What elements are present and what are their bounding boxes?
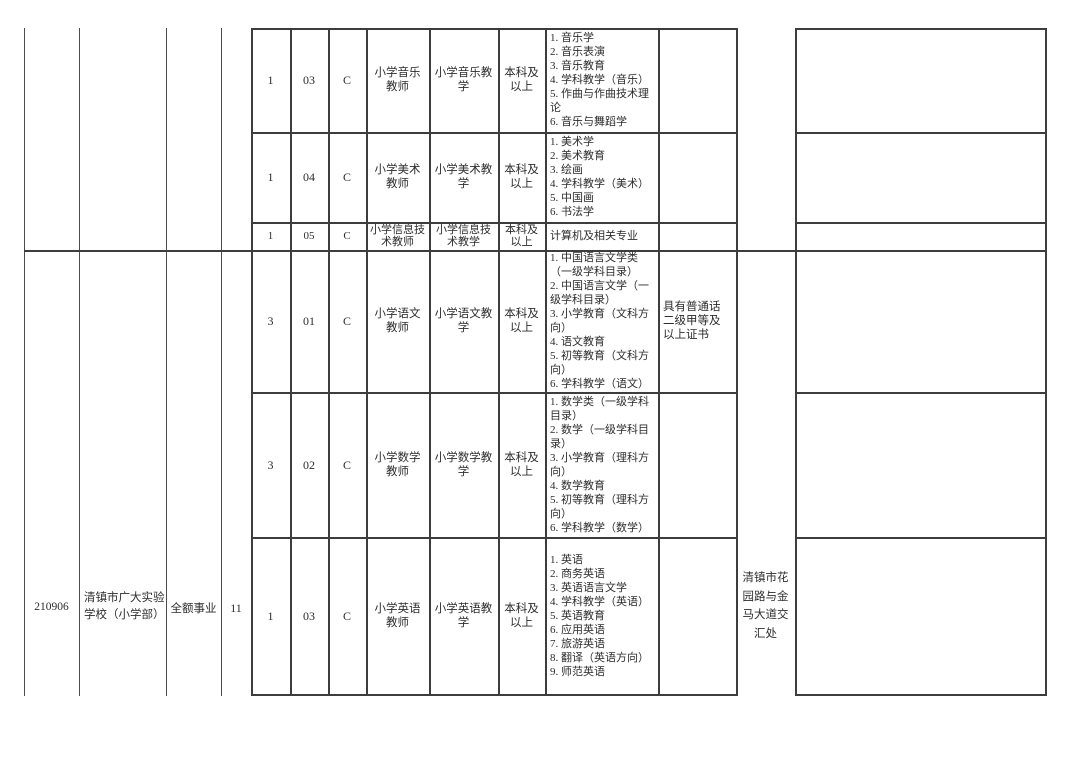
exam-category-cell: C bbox=[328, 392, 366, 537]
major-requirements-cell: 1. 英语 2. 商务英语 3. 英语语言文学 4. 学科教学（英语） 5. 英… bbox=[545, 537, 658, 694]
major-requirements-cell: 1. 音乐学 2. 音乐表演 3. 音乐教育 4. 学科教学（音乐） 5. 作曲… bbox=[545, 28, 658, 132]
exam-category-cell: C bbox=[328, 132, 366, 222]
grid-line bbox=[795, 537, 1047, 539]
teaching-subject-cell: 小学数学教学 bbox=[429, 392, 498, 537]
teaching-subject-cell: 小学语文教学 bbox=[429, 250, 498, 392]
position-name-cell: 小学音乐教师 bbox=[366, 28, 429, 132]
position-count-cell: 3 bbox=[251, 392, 290, 537]
position-count-cell: 1 bbox=[251, 28, 290, 132]
grid-line bbox=[795, 132, 1047, 134]
position-count-cell: 1 bbox=[251, 132, 290, 222]
position-count-cell: 1 bbox=[251, 537, 290, 694]
teaching-subject-cell: 小学美术教学 bbox=[429, 132, 498, 222]
position-name-cell: 小学语文教师 bbox=[366, 250, 429, 392]
position-name-cell: 小学数学教师 bbox=[366, 392, 429, 537]
position-code-cell: 02 bbox=[290, 392, 328, 537]
work-address-cell: 清镇市花园路与金马大道交汇处 bbox=[738, 566, 793, 646]
unit-code-cell: 210906 bbox=[24, 598, 79, 616]
major-requirements-cell: 计算机及相关专业 bbox=[545, 222, 658, 250]
position-count-cell: 3 bbox=[251, 250, 290, 392]
education-requirement-cell: 本科及以上 bbox=[498, 132, 545, 222]
grid-line bbox=[221, 28, 222, 696]
unit-type-cell: 全额事业 bbox=[166, 600, 221, 618]
position-code-cell: 05 bbox=[290, 222, 328, 250]
major-requirements-cell: 1. 中国语言文学类（一级学科目录） 2. 中国语言文学（一级学科目录） 3. … bbox=[545, 250, 658, 392]
teaching-subject-cell: 小学英语教学 bbox=[429, 537, 498, 694]
position-name-cell: 小学美术教师 bbox=[366, 132, 429, 222]
unit-name-cell: 清镇市广大实验学校（小学部） bbox=[80, 588, 166, 626]
position-code-cell: 01 bbox=[290, 250, 328, 392]
major-requirements-cell: 1. 数学类（一级学科目录） 2. 数学（一级学科目录） 3. 小学教育（理科方… bbox=[545, 392, 658, 537]
grid-line bbox=[24, 28, 25, 696]
position-code-cell: 03 bbox=[290, 28, 328, 132]
position-code-cell: 03 bbox=[290, 537, 328, 694]
exam-category-cell: C bbox=[328, 250, 366, 392]
position-name-cell: 小学信息技术教师 bbox=[366, 222, 429, 250]
education-requirement-cell: 本科及以上 bbox=[498, 222, 545, 250]
exam-category-cell: C bbox=[328, 537, 366, 694]
grid-line bbox=[795, 392, 1047, 394]
recruitment-table-page: 1 03 C 小学音乐教师 小学音乐教学 本科及以上 1. 音乐学 2. 音乐表… bbox=[0, 0, 1080, 764]
education-requirement-cell: 本科及以上 bbox=[498, 537, 545, 694]
teaching-subject-cell: 小学信息技术教学 bbox=[429, 222, 498, 250]
education-requirement-cell: 本科及以上 bbox=[498, 250, 545, 392]
other-requirements-cell: 具有普通话二级甲等及以上证书 bbox=[658, 250, 736, 392]
grid-line bbox=[1045, 28, 1047, 696]
education-requirement-cell: 本科及以上 bbox=[498, 28, 545, 132]
grid-line bbox=[166, 28, 167, 696]
position-name-cell: 小学英语教师 bbox=[366, 537, 429, 694]
grid-line bbox=[251, 694, 738, 696]
grid-line bbox=[795, 694, 1047, 696]
position-code-cell: 04 bbox=[290, 132, 328, 222]
education-requirement-cell: 本科及以上 bbox=[498, 392, 545, 537]
grid-line bbox=[795, 28, 797, 696]
major-requirements-cell: 1. 美术学 2. 美术教育 3. 绘画 4. 学科教学（美术） 5. 中国画 … bbox=[545, 132, 658, 222]
staffing-total-cell: 11 bbox=[221, 599, 251, 617]
teaching-subject-cell: 小学音乐教学 bbox=[429, 28, 498, 132]
grid-line bbox=[795, 222, 1047, 224]
exam-category-cell: C bbox=[328, 28, 366, 132]
exam-category-cell: C bbox=[328, 222, 366, 250]
position-count-cell: 1 bbox=[251, 222, 290, 250]
grid-line bbox=[795, 28, 1047, 30]
